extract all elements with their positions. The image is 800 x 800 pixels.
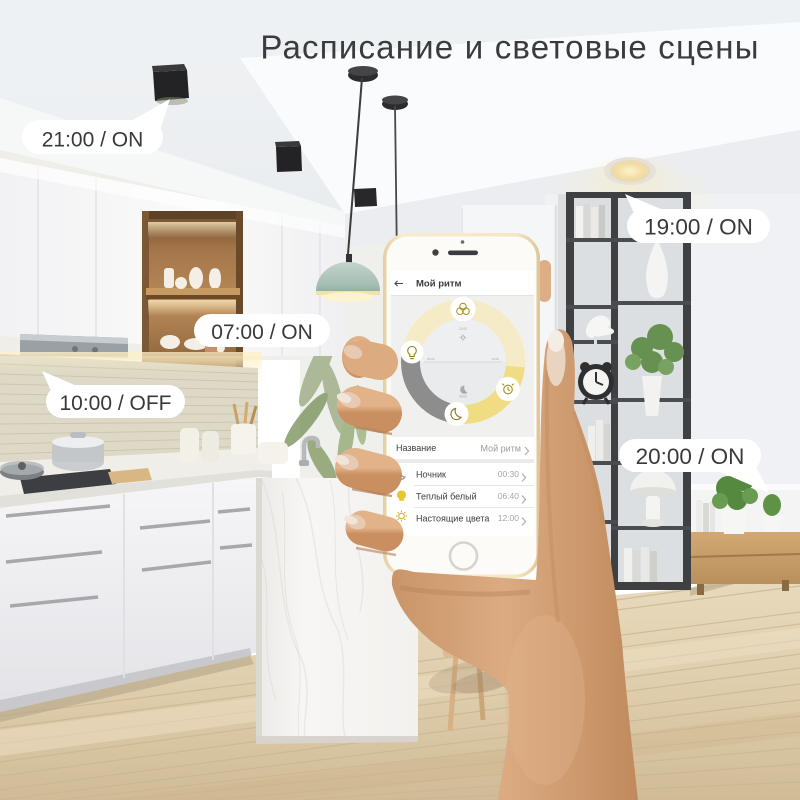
svg-text:18:00: 18:00 [491, 357, 499, 361]
svg-text:Название: Название [396, 443, 436, 453]
svg-text:06:40: 06:40 [498, 491, 520, 501]
svg-text:10:00 / OFF: 10:00 / OFF [59, 392, 171, 415]
svg-text:07:00 / ON: 07:00 / ON [211, 321, 313, 344]
svg-text:Мой ритм: Мой ритм [481, 444, 521, 454]
svg-text:19:00 / ON: 19:00 / ON [644, 215, 753, 240]
svg-text:00:00: 00:00 [459, 395, 467, 399]
svg-text:12:00: 12:00 [498, 513, 520, 523]
svg-text:20:00 / ON: 20:00 / ON [636, 444, 745, 469]
svg-text:Настоящие цвета: Настоящие цвета [416, 514, 489, 524]
svg-text:21:00 / ON: 21:00 / ON [42, 129, 144, 152]
svg-text:Ночник: Ночник [416, 470, 446, 480]
svg-text:Мой ритм: Мой ритм [416, 279, 462, 290]
svg-text:Теплый белый: Теплый белый [416, 492, 477, 502]
svg-text:Расписание и световые сцены: Расписание и световые сцены [260, 29, 759, 66]
svg-text:06:00: 06:00 [427, 357, 435, 361]
svg-text:00:30: 00:30 [498, 469, 520, 479]
svg-text:12:00: 12:00 [459, 327, 467, 331]
